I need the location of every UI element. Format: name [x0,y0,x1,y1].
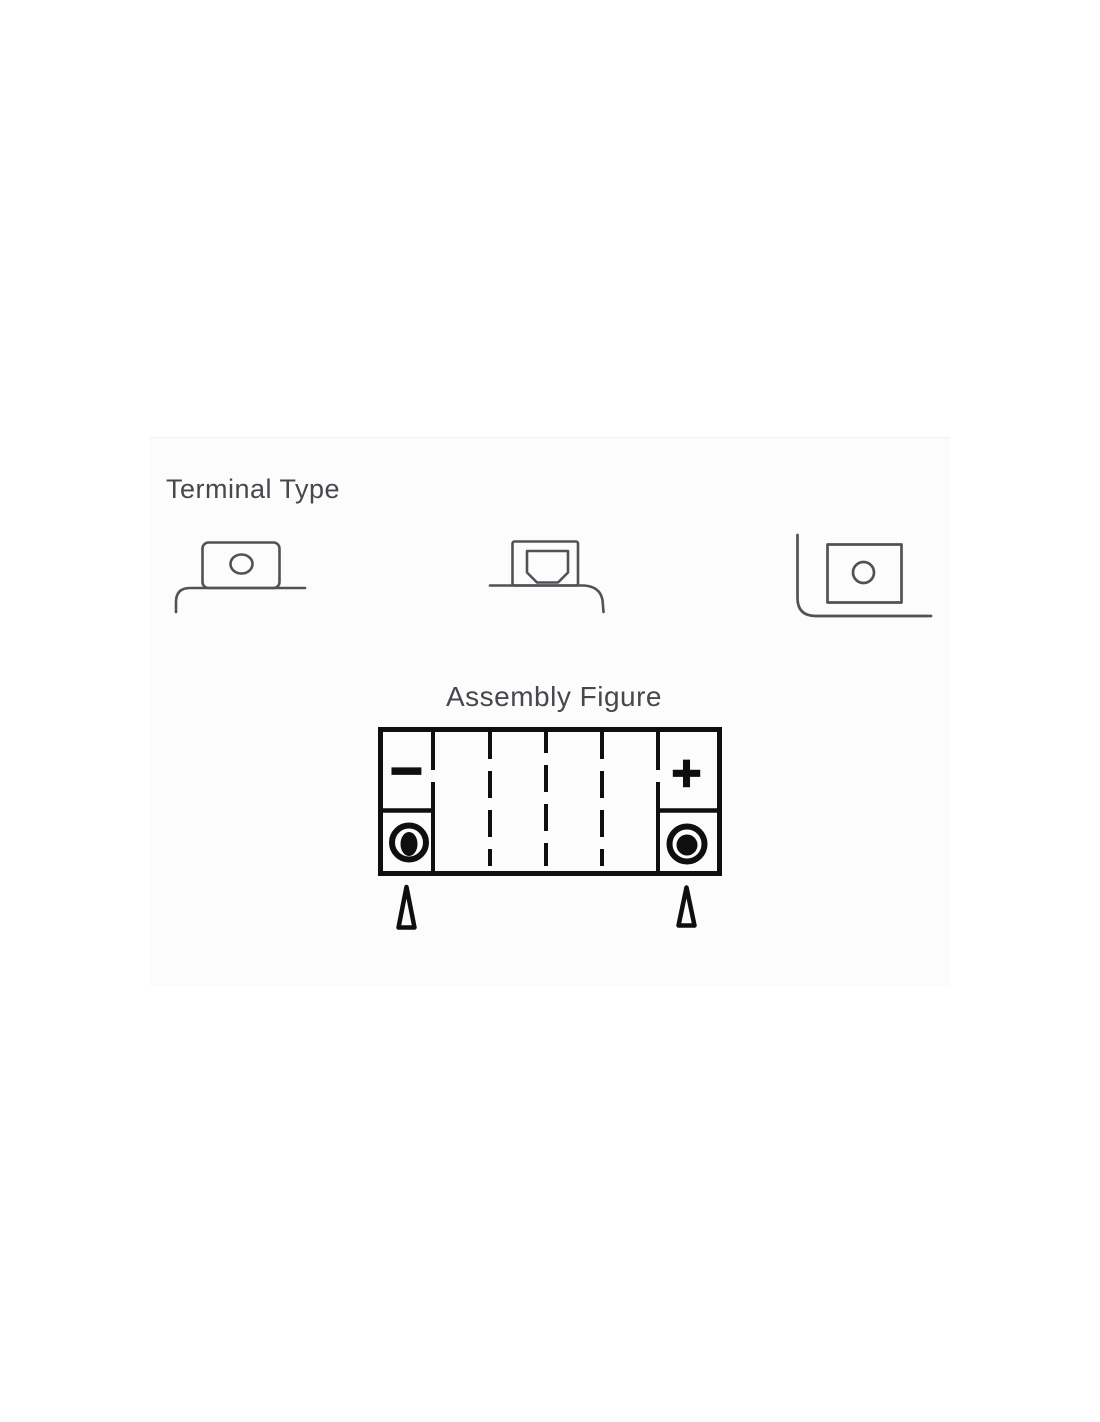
negative-bolt-icon [392,826,426,860]
terminal-nut-recess-icon [490,542,604,613]
terminal-type-icons [150,520,950,630]
terminal-type-title: Terminal Type [166,474,340,505]
svg-text:+: + [670,750,704,796]
positive-bolt-icon [670,827,705,862]
page: Terminal Type Assembly Figure [0,0,1100,1422]
negative-symbol: − [388,745,425,796]
assembly-figure-title: Assembly Figure [154,681,954,713]
assembly-figure-diagram: − + [365,715,735,945]
positive-symbol: + [670,750,704,796]
terminal-side-round-hole-icon [798,535,932,616]
terminal-top-round-hole-icon [176,543,305,613]
negative-position-marker-icon [399,887,415,928]
positive-position-marker-icon [679,888,695,926]
svg-text:−: − [388,745,425,796]
cell-divider-lines [433,730,658,871]
